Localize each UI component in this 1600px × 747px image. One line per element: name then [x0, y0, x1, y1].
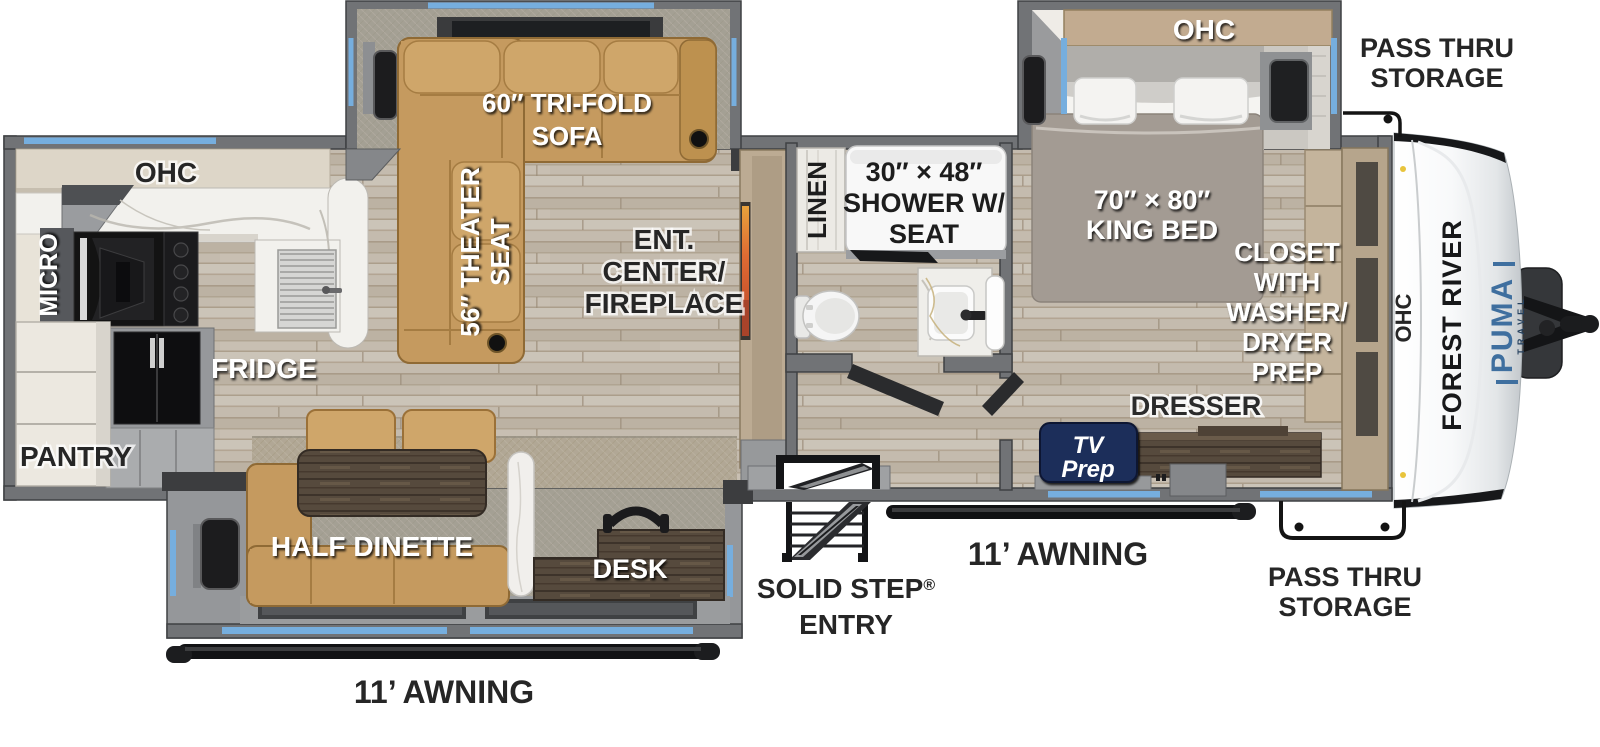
svg-text:SEAT: SEAT — [889, 219, 960, 249]
svg-text:PASS THRU: PASS THRU — [1360, 33, 1514, 63]
svg-text:ENT.: ENT. — [634, 224, 695, 255]
svg-text:LINEN: LINEN — [802, 161, 832, 239]
svg-text:MICRO: MICRO — [35, 233, 63, 316]
svg-text:PREP: PREP — [1252, 357, 1323, 387]
svg-text:ENTRY: ENTRY — [799, 609, 893, 640]
svg-text:FIREPLACE: FIREPLACE — [585, 288, 744, 319]
svg-text:FRIDGE: FRIDGE — [211, 353, 317, 384]
svg-text:SOFA: SOFA — [532, 121, 603, 151]
svg-text:70″ × 80″: 70″ × 80″ — [1094, 185, 1211, 215]
svg-text:TV: TV — [1073, 432, 1106, 459]
svg-text:CLOSET: CLOSET — [1234, 237, 1340, 267]
svg-text:56″ THEATER: 56″ THEATER — [455, 167, 485, 337]
svg-text:DESK: DESK — [592, 554, 668, 584]
svg-text:WITH: WITH — [1254, 267, 1320, 297]
svg-text:60″ TRI-FOLD: 60″ TRI-FOLD — [482, 88, 652, 118]
svg-text:11’ AWNING: 11’ AWNING — [354, 674, 534, 710]
svg-text:KING BED: KING BED — [1086, 215, 1218, 245]
svg-text:Prep: Prep — [1061, 456, 1114, 483]
svg-text:DRESSER: DRESSER — [1131, 391, 1262, 421]
svg-text:PUMA: PUMA — [1486, 277, 1519, 373]
svg-text:PASS THRU: PASS THRU — [1268, 562, 1422, 592]
svg-text:TRAVEL: TRAVEL — [1516, 295, 1526, 354]
svg-text:30″ × 48″: 30″ × 48″ — [866, 157, 983, 187]
svg-text:CENTER/: CENTER/ — [603, 256, 726, 287]
svg-text:FOREST RIVER: FOREST RIVER — [1437, 219, 1467, 431]
svg-text:STORAGE: STORAGE — [1370, 63, 1503, 93]
svg-text:OHC: OHC — [1391, 293, 1416, 342]
svg-text:OHC: OHC — [135, 157, 197, 188]
svg-text:SHOWER W/: SHOWER W/ — [843, 188, 1005, 218]
svg-text:STORAGE: STORAGE — [1278, 592, 1411, 622]
svg-text:SEAT: SEAT — [485, 218, 515, 286]
svg-text:OHC: OHC — [1173, 14, 1235, 45]
svg-text:DRYER: DRYER — [1242, 327, 1332, 357]
svg-text:HALF DINETTE: HALF DINETTE — [271, 531, 473, 562]
svg-text:PANTRY: PANTRY — [20, 441, 132, 472]
svg-text:WASHER/: WASHER/ — [1226, 297, 1347, 327]
svg-text:11’ AWNING: 11’ AWNING — [968, 536, 1148, 572]
svg-text:SOLID STEP®: SOLID STEP® — [757, 573, 935, 604]
